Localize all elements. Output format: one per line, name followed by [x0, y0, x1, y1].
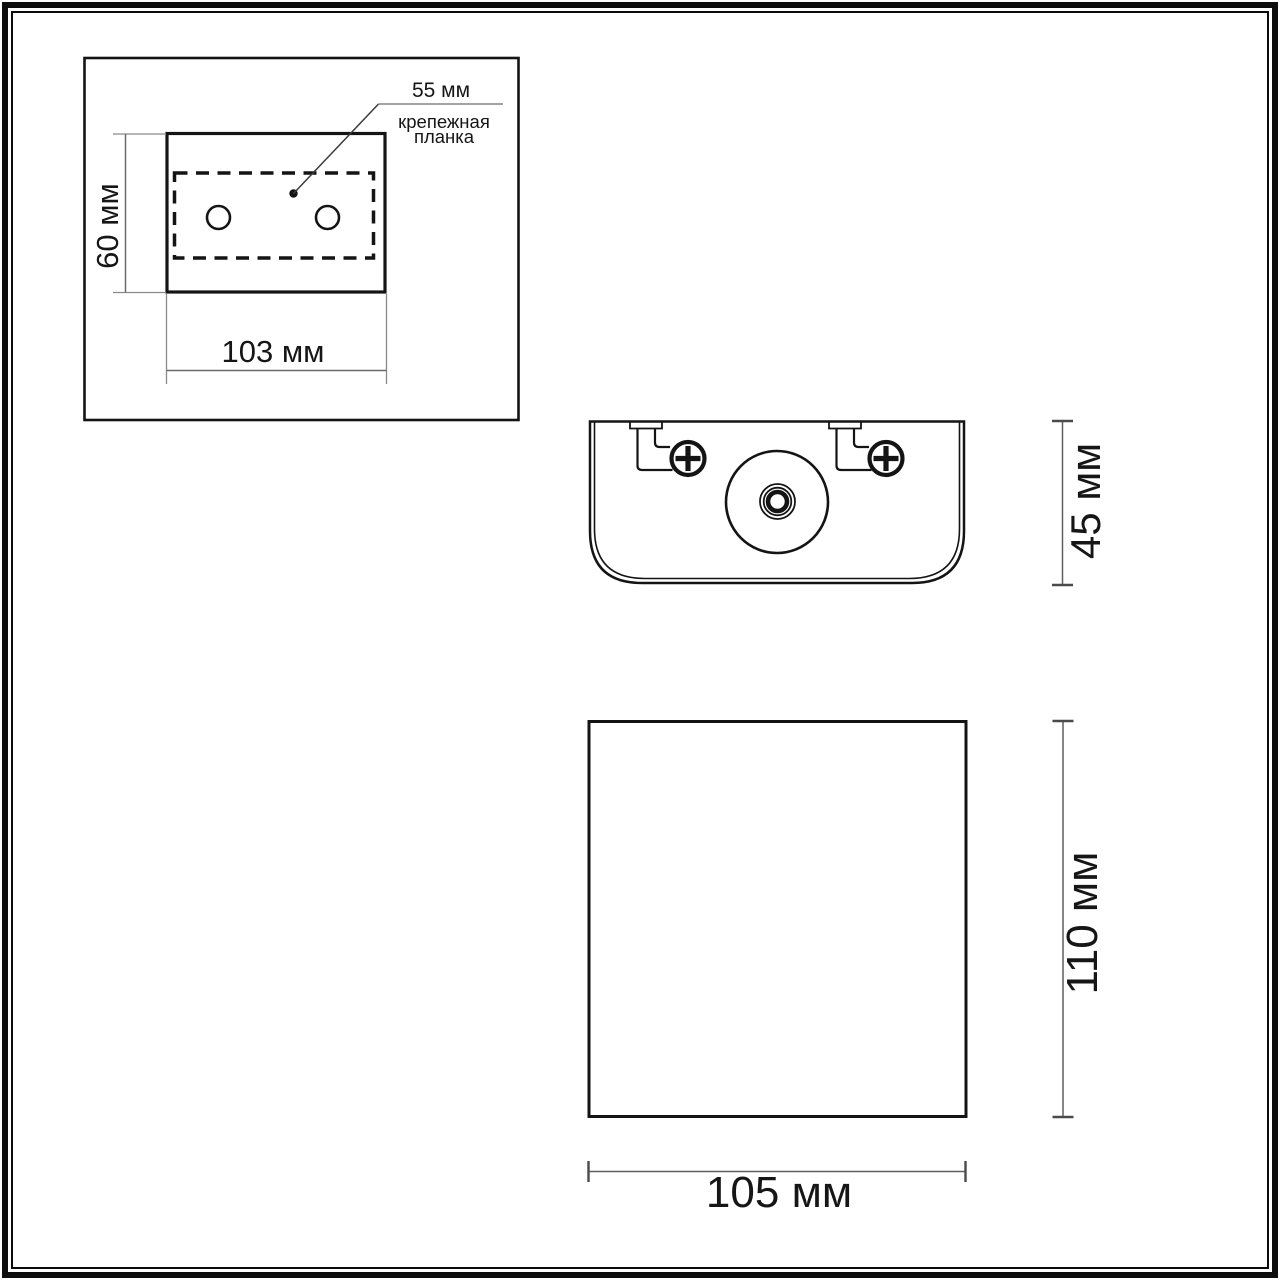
leader-line	[294, 104, 379, 194]
top-view	[590, 421, 1073, 585]
drawing-linework	[0, 0, 1280, 1280]
plate-outline	[167, 134, 385, 293]
cable-entry-icon	[726, 451, 828, 553]
plate-height-label: 60 мм	[90, 183, 126, 269]
front-view-width-label: 105 мм	[706, 1168, 852, 1218]
mounting-bar-callout: крепежная планка	[398, 114, 490, 144]
front-view-outline	[589, 722, 966, 1117]
mounting-hole-right-icon	[316, 206, 339, 229]
hole-spacing-label: 55 мм	[412, 79, 470, 103]
top-view-height-label: 45 мм	[1062, 443, 1110, 559]
front-view-height-label: 110 мм	[1058, 852, 1108, 995]
mounting-hole-left-icon	[207, 206, 230, 229]
screw-right-icon	[870, 442, 903, 475]
drawing-page: 55 мм крепежная планка 60 мм 103 мм 45 м…	[0, 0, 1280, 1280]
mounting-bar-dashed-outline	[175, 173, 374, 258]
plate-width-label: 103 мм	[222, 334, 325, 370]
screw-left-icon	[672, 442, 705, 475]
front-view	[589, 721, 1074, 1182]
